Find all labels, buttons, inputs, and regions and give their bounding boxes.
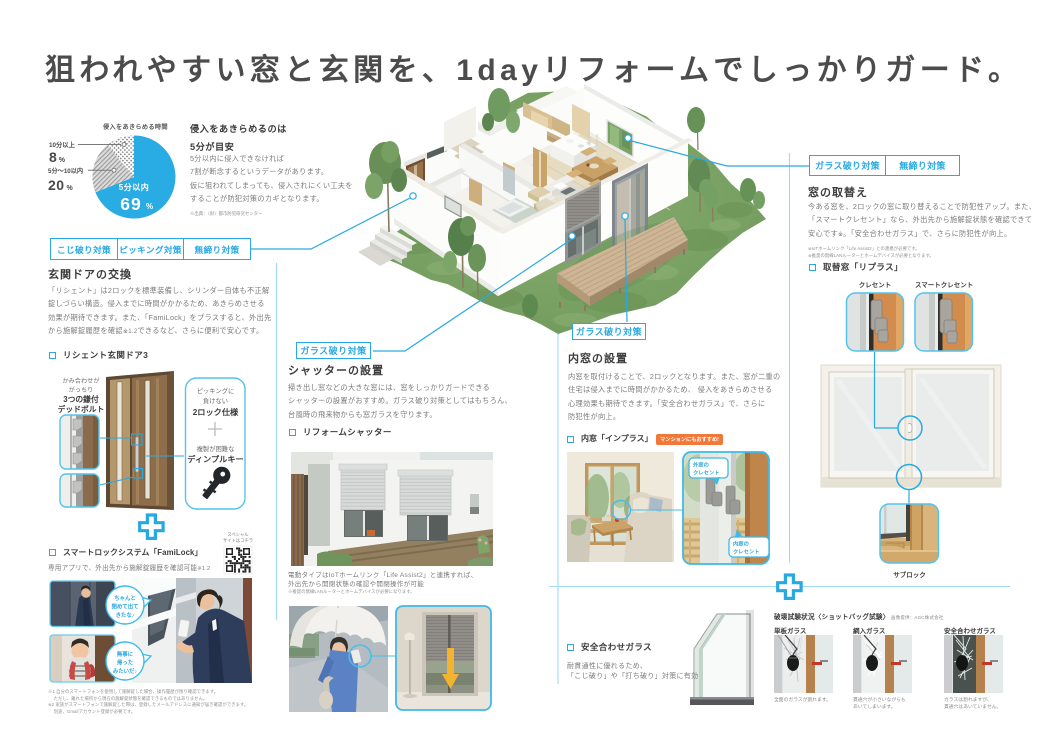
svg-text:69: 69 — [120, 194, 141, 214]
svg-text:クレセント: クレセント — [693, 469, 720, 477]
svg-text:外窓の: 外窓の — [692, 461, 709, 469]
svg-text:ちゃんと: ちゃんと — [114, 594, 136, 602]
svg-text:内窓の: 内窓の — [733, 540, 749, 548]
svg-text:きたな♪: きたな♪ — [116, 611, 135, 619]
svg-text:5分以内: 5分以内 — [119, 182, 149, 192]
svg-text:クレセント: クレセント — [733, 548, 760, 556]
svg-text:%: % — [146, 202, 153, 211]
svg-text:無事に: 無事に — [117, 650, 133, 658]
svg-text:閉めて出て: 閉めて出て — [112, 603, 139, 611]
svg-text:帰った: 帰った — [117, 659, 134, 667]
svg-text:みたいだ♪: みたいだ♪ — [113, 668, 138, 675]
